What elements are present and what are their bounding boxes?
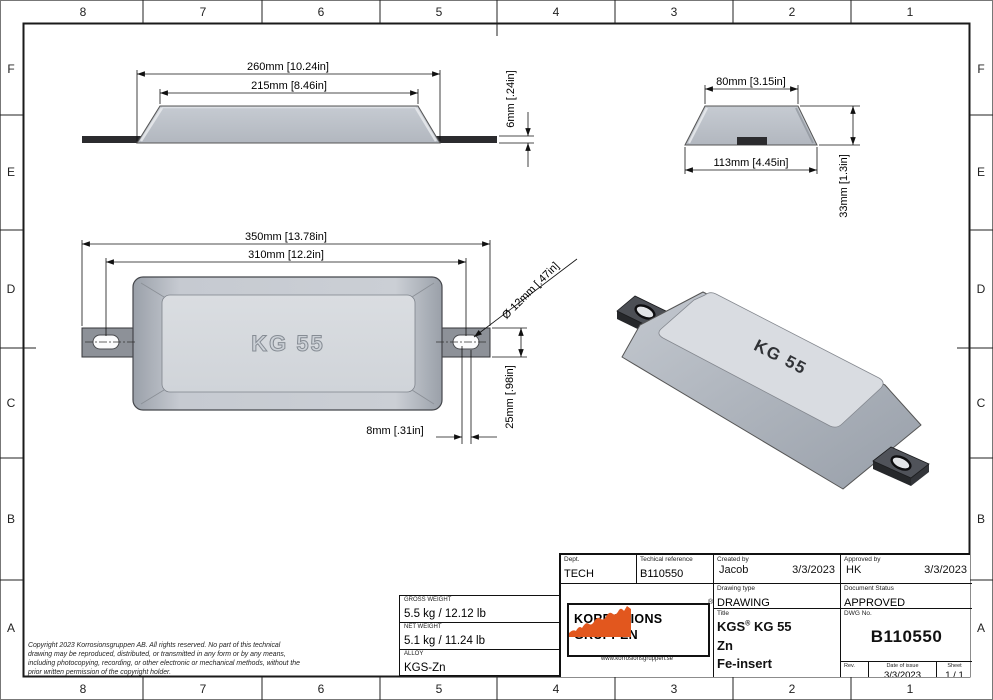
dim-text-310mm: 310mm [12.2in] — [248, 249, 324, 261]
dim-text-215mm: 215mm [8.46in] — [251, 80, 327, 92]
dim-text-113mm: 113mm [4.45in] — [713, 157, 788, 169]
created-by-date: 3/3/2023 — [792, 564, 835, 576]
dim-text-hole-diameter: Ø 12mm [.47in] — [500, 260, 562, 322]
gross-weight-label: GROSS WEIGHT — [404, 597, 555, 604]
alloy-value: KGS-Zn — [404, 662, 446, 674]
title-block: Dept. TECH Techical reference B110550 Cr… — [559, 553, 970, 677]
dim-text-6mm: 6mm [.24in] — [505, 70, 517, 127]
copyright-notice: Copyright 2023 Korrosionsgruppen AB. All… — [28, 641, 304, 677]
created-by-cell: Created by Jacob 3/3/2023 — [714, 555, 841, 584]
net-weight-row: NET WEIGHT 5.1 kg / 11.24 lb — [400, 623, 559, 650]
zone-col-label: 4 — [553, 6, 560, 18]
zone-col-label: 7 — [200, 683, 207, 695]
dim-25mm — [492, 328, 527, 357]
zone-col-label: 7 — [200, 6, 207, 18]
approved-by-date: 3/3/2023 — [924, 564, 967, 576]
title-line-2: Zn — [717, 637, 837, 656]
sheet-value: 1 / 1 — [940, 670, 969, 677]
drawing-type-cell: Drawing type DRAWING — [714, 584, 841, 609]
title-line-1: KGS® KG 55 — [717, 618, 837, 637]
zone-col-label: 8 — [80, 6, 87, 18]
net-weight-value: 5.1 kg / 11.24 lb — [404, 635, 485, 647]
title-line-3: Fe-insert — [717, 655, 837, 674]
zone-col-label: 6 — [318, 683, 325, 695]
dwg-number-value: B110550 — [844, 627, 969, 647]
created-by-name: Jacob — [719, 564, 748, 576]
drawing-sheet: 260mm [10.24in] 215mm [8.46in] 6mm [.24i… — [0, 0, 993, 700]
document-status-label: Document Status — [844, 585, 969, 593]
zone-col-label: 6 — [318, 6, 325, 18]
created-by-label: Created by — [717, 556, 837, 564]
dept-cell: Dept. TECH — [561, 555, 637, 584]
technical-reference-value: B110550 — [640, 568, 683, 580]
zone-col-label: 1 — [907, 6, 914, 18]
dwg-number-cell: DWG No. B110550 — [841, 609, 972, 662]
technical-reference-label: Techical reference — [640, 556, 710, 564]
zone-row-label: C — [977, 397, 986, 409]
document-status-value: APPROVED — [844, 597, 905, 609]
registered-mark: ® — [708, 599, 711, 606]
date-of-issue-value: 3/3/2023 — [872, 670, 933, 677]
zone-row-label: F — [7, 63, 14, 75]
dept-value: TECH — [564, 568, 594, 580]
zone-row-label: F — [977, 63, 984, 75]
dwg-number-label: DWG No. — [844, 610, 969, 618]
dim-text-33mm: 33mm [1.3in] — [838, 154, 850, 218]
approved-by-name: HK — [846, 564, 861, 576]
date-of-issue-label: Date of issue — [872, 663, 933, 670]
alloy-row: ALLOY KGS-Zn — [400, 650, 559, 677]
company-website: www.korrosionsgruppen.se — [561, 656, 713, 662]
approved-by-cell: Approved by HK 3/3/2023 — [841, 555, 972, 584]
fe-insert-strap-end — [737, 137, 767, 145]
anode-body-side — [137, 106, 440, 143]
zone-col-label: 1 — [907, 683, 914, 695]
dim-text-350mm: 350mm [13.78in] — [245, 231, 327, 243]
document-status-cell: Document Status APPROVED — [841, 584, 972, 609]
title-cell: Title KGS® KG 55 Zn Fe-insert — [714, 609, 841, 677]
dim-text-8mm: 8mm [.31in] — [366, 425, 423, 437]
zone-row-label: A — [977, 622, 985, 634]
drawing-title: KGS® KG 55 Zn Fe-insert — [717, 618, 837, 675]
zone-row-label: B — [977, 513, 985, 525]
revision-cell: Rev. — [841, 662, 869, 677]
logo-mountain-icon — [569, 605, 631, 637]
approved-by-label: Approved by — [844, 556, 969, 564]
zone-col-label: 5 — [436, 6, 443, 18]
isometric-view: KG 55 — [617, 292, 929, 489]
zone-row-label: D — [977, 283, 986, 295]
zone-col-label: 3 — [671, 6, 678, 18]
company-logo: KORROSIONS GRUPPEN — [567, 603, 710, 657]
dim-8mm — [436, 346, 497, 444]
zone-col-label: 8 — [80, 683, 87, 695]
end-elevation-view: 80mm [3.15in] 113mm [4.45in] 33mm [1.3in… — [685, 76, 860, 218]
dim-text-25mm: 25mm [.98in] — [504, 365, 516, 429]
zone-col-label: 2 — [789, 6, 796, 18]
zone-row-label: E — [7, 166, 15, 178]
zone-row-label: A — [7, 622, 15, 634]
side-elevation-view: 260mm [10.24in] 215mm [8.46in] 6mm [.24i… — [82, 61, 534, 167]
drawing-type-value: DRAWING — [717, 597, 770, 609]
date-of-issue-cell: Date of issue 3/3/2023 — [869, 662, 937, 677]
plan-view: KG 55 350mm [13.78in] 310mm [12.2in] — [82, 231, 577, 444]
zone-row-label: E — [977, 166, 985, 178]
zone-col-label: 3 — [671, 683, 678, 695]
sheet-label: Sheet — [940, 663, 969, 670]
company-logo-cell: KORROSIONS GRUPPEN ® www.korrosionsgrupp… — [561, 584, 714, 677]
dept-label: Dept. — [564, 556, 633, 564]
zone-col-label: 5 — [436, 683, 443, 695]
net-weight-label: NET WEIGHT — [404, 624, 555, 631]
revision-label: Rev. — [844, 663, 865, 670]
sheet-cell: Sheet 1 / 1 — [937, 662, 972, 677]
title-label: Title — [717, 610, 837, 618]
zone-row-label: B — [7, 513, 15, 525]
dim-text-260mm: 260mm [10.24in] — [247, 61, 329, 73]
gross-weight-row: GROSS WEIGHT 5.5 kg / 12.12 lb — [400, 596, 559, 623]
zone-col-label: 4 — [553, 683, 560, 695]
weights-block: GROSS WEIGHT 5.5 kg / 12.12 lb NET WEIGH… — [399, 595, 559, 676]
dim-text-80mm: 80mm [3.15in] — [716, 76, 786, 88]
zone-col-label: 2 — [789, 683, 796, 695]
zone-row-label: D — [7, 283, 16, 295]
anode-embossed-label-plan: KG 55 — [251, 331, 325, 356]
alloy-label: ALLOY — [404, 651, 555, 658]
drawing-type-label: Drawing type — [717, 585, 837, 593]
technical-reference-cell: Techical reference B110550 — [637, 555, 714, 584]
zone-row-label: C — [7, 397, 16, 409]
gross-weight-value: 5.5 kg / 12.12 lb — [404, 608, 486, 620]
